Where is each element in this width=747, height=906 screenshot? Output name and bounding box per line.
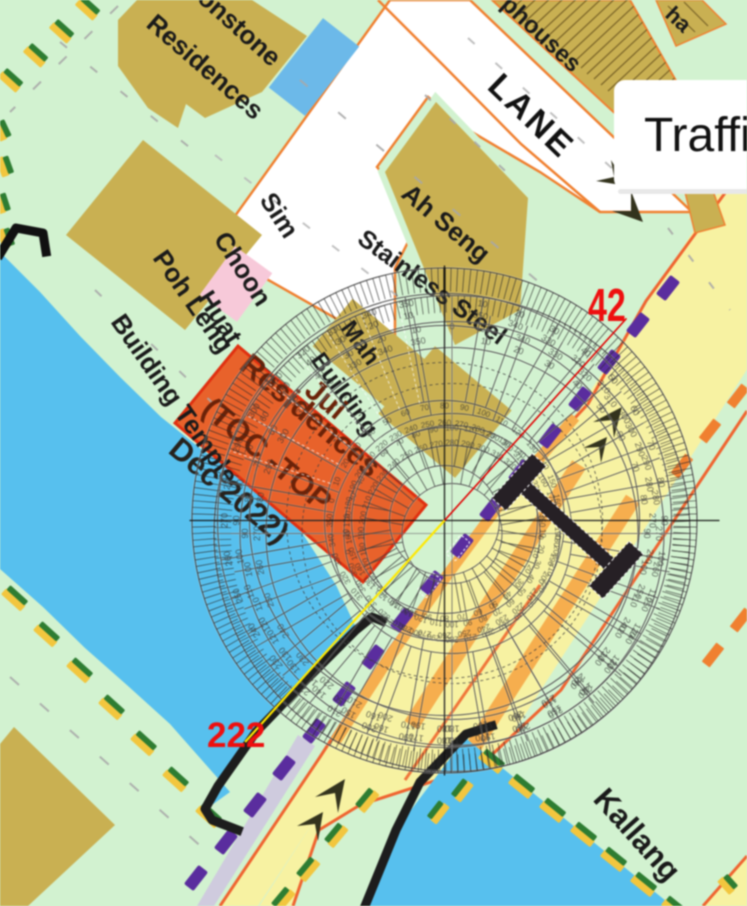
svg-text:10: 10 [477,298,489,310]
svg-text:10: 10 [403,310,415,322]
svg-text:Traffic: Traffic [644,109,747,162]
svg-text:80: 80 [638,494,650,506]
svg-text:80: 80 [655,476,667,488]
svg-text:222: 222 [207,716,265,755]
svg-text:42: 42 [588,279,626,331]
svg-text:10: 10 [480,336,492,348]
svg-text:80: 80 [234,479,246,491]
